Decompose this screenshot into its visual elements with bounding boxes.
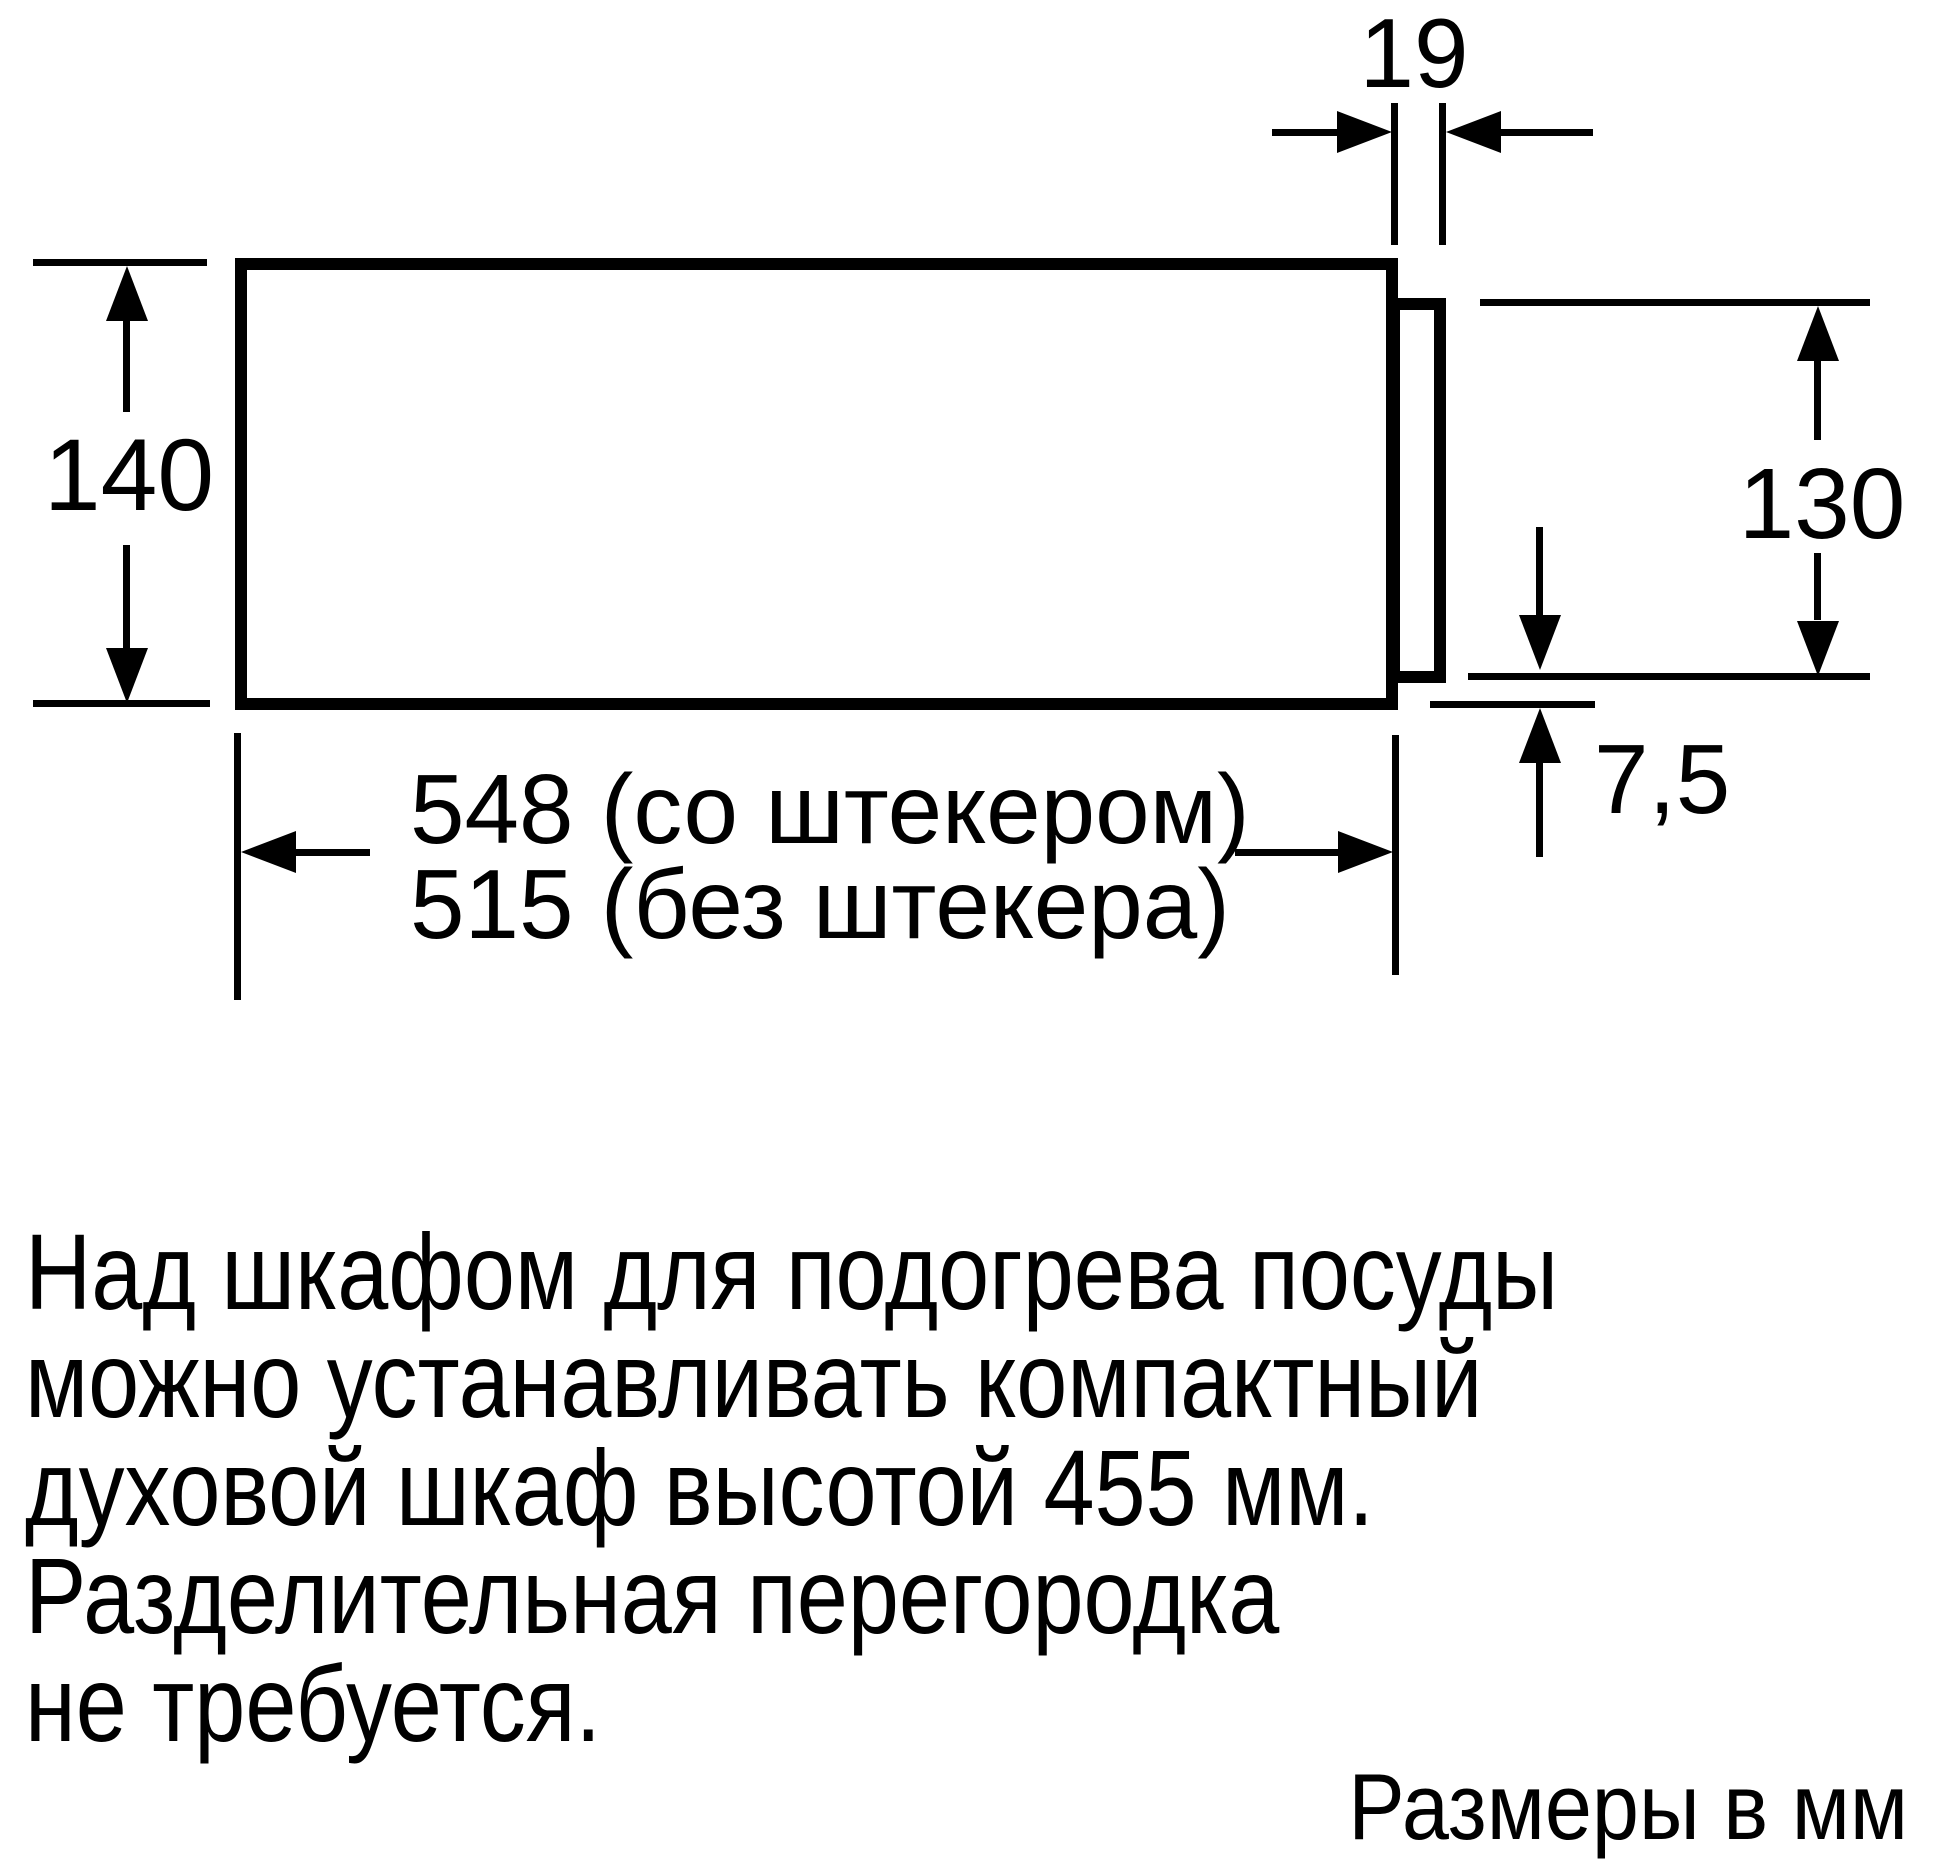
note-line-3: духовой шкаф высотой 455 мм. [25, 1434, 1558, 1542]
dim-130-label: 130 [1712, 454, 1932, 554]
dim-depth-extension-line-right [1392, 735, 1399, 975]
dim-19-arrow-shaft-left [1272, 129, 1342, 136]
dim-7-5-arrowhead-up-icon [1519, 708, 1561, 763]
dim-130-arrow-shaft-bottom [1814, 553, 1821, 620]
front-panel-outline [1388, 298, 1446, 683]
note-line-2: можно устанавливать компактный [25, 1326, 1558, 1434]
dim-140-arrowhead-up-icon [106, 266, 148, 321]
dim-depth-extension-line-left [234, 733, 241, 1000]
dim-depth-arrowhead-left-icon [241, 831, 296, 873]
dim-130-arrowhead-up-icon [1797, 306, 1839, 361]
dim-depth-arrow-shaft-left [294, 849, 370, 856]
dim-140-arrow-shaft-bottom [123, 545, 130, 648]
dim-depth-with-plug-label: 548 (со штекером) [410, 760, 1250, 858]
dim-7-5-arrow-shaft-top [1536, 527, 1543, 615]
units-label: Размеры в мм [1348, 1760, 1908, 1854]
dim-19-arrow-shaft-right [1501, 129, 1593, 136]
dim-130-arrow-shaft-top [1814, 358, 1821, 440]
note-line-4: Разделительная перегородка [25, 1542, 1558, 1650]
installation-note: Над шкафом для подогрева посуды можно ус… [25, 1218, 1558, 1758]
installation-dimension-diagram: 19 140 130 7,5 548 (со штекером) 515 (бе… [0, 0, 1936, 1875]
dim-140-label: 140 [39, 424, 219, 526]
dim-19-extension-line-right [1439, 103, 1446, 245]
dim-140-extension-line-top [33, 259, 207, 266]
dim-7-5-arrow-shaft-bottom [1536, 760, 1543, 857]
dim-19-arrowhead-left-icon [1446, 111, 1501, 153]
note-line-1: Над шкафом для подогрева посуды [25, 1218, 1558, 1326]
dim-depth-arrow-shaft-right [1235, 849, 1339, 856]
dim-140-arrow-shaft-top [123, 318, 130, 412]
drawer-body-outline [235, 258, 1398, 710]
dim-140-arrowhead-down-icon [106, 648, 148, 703]
dim-depth-arrowhead-right-icon [1338, 831, 1393, 873]
dim-7-5-label: 7,5 [1594, 730, 1730, 828]
dim-19-label: 19 [1344, 4, 1484, 102]
dim-130-extension-line-top [1480, 299, 1870, 306]
dim-19-arrowhead-right-icon [1337, 111, 1392, 153]
dim-19-extension-line-left [1391, 103, 1398, 245]
dim-depth-without-plug-label: 515 (без штекера) [410, 855, 1230, 953]
note-line-5: не требуется. [25, 1650, 1558, 1758]
dim-7-5-extension-line-bottom [1430, 701, 1595, 708]
dim-130-arrowhead-down-icon [1797, 621, 1839, 676]
dim-7-5-arrowhead-down-icon [1519, 615, 1561, 670]
